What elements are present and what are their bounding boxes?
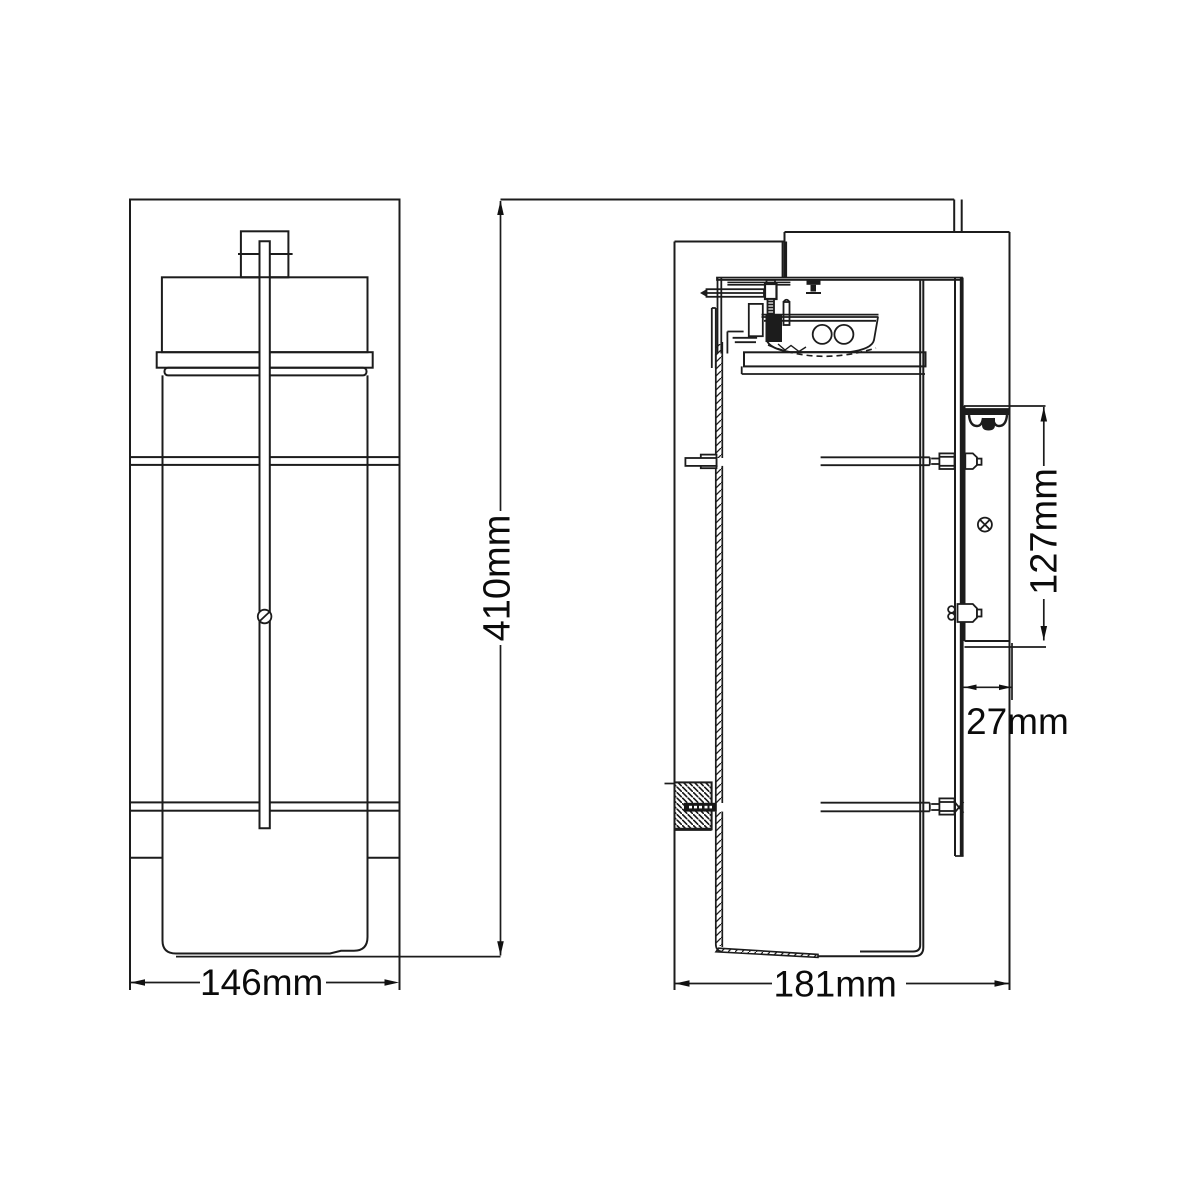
svg-text:410mm: 410mm (477, 515, 519, 642)
svg-text:146mm: 146mm (200, 962, 323, 1003)
svg-text:27mm: 27mm (966, 701, 1069, 742)
svg-text:127mm: 127mm (1024, 468, 1066, 595)
svg-text:181mm: 181mm (774, 964, 897, 1005)
